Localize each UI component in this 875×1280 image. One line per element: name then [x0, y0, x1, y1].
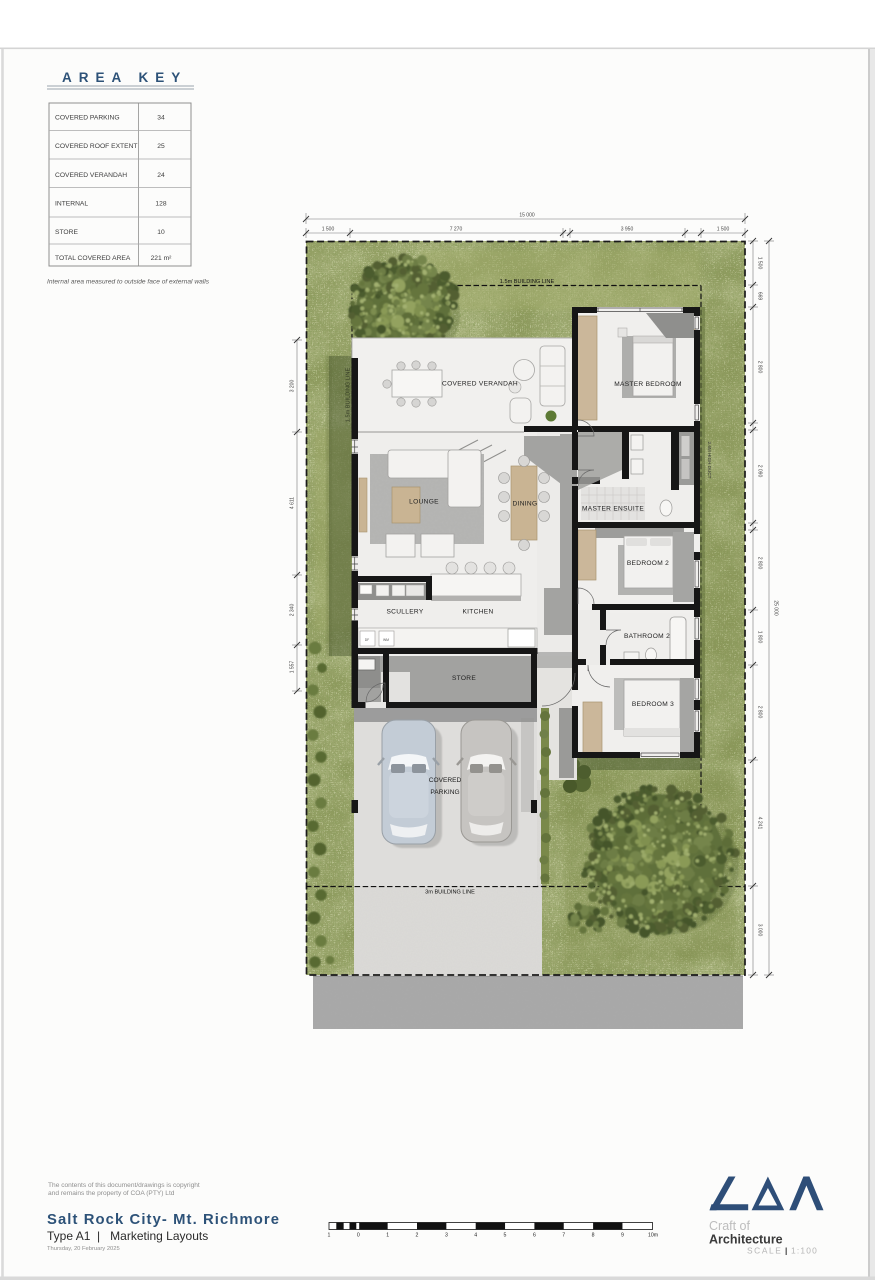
svg-text:1 800: 1 800 — [757, 631, 763, 644]
svg-text:DF: DF — [365, 638, 370, 642]
svg-text:PARKING: PARKING — [430, 789, 459, 796]
svg-text:BEDROOM 2: BEDROOM 2 — [627, 560, 669, 567]
svg-text:Salt Rock City- Mt. Richmore: Salt Rock City- Mt. Richmore — [47, 1212, 280, 1228]
svg-text:1:100: 1:100 — [791, 1246, 818, 1256]
svg-text:15 000: 15 000 — [519, 213, 535, 219]
svg-text:4 241: 4 241 — [757, 817, 763, 830]
svg-text:34: 34 — [157, 115, 165, 122]
svg-text:6: 6 — [533, 1233, 536, 1239]
svg-text:7 270: 7 270 — [450, 227, 463, 233]
svg-text:COVERED ROOF EXTENT: COVERED ROOF EXTENT — [55, 143, 138, 150]
svg-text:SCULLERY: SCULLERY — [386, 609, 423, 616]
svg-text:AREA KEY: AREA KEY — [62, 70, 187, 85]
svg-text:2 090: 2 090 — [757, 465, 763, 478]
svg-text:Architecture: Architecture — [709, 1233, 783, 1247]
svg-text:0: 0 — [357, 1233, 360, 1239]
svg-text:TOTAL COVERED AREA: TOTAL COVERED AREA — [55, 255, 131, 262]
svg-text:24: 24 — [157, 172, 165, 179]
svg-text:1 500: 1 500 — [717, 227, 730, 233]
svg-text:1 557: 1 557 — [290, 661, 296, 674]
svg-text:221 m²: 221 m² — [151, 255, 173, 262]
svg-text:Internal area measured to outs: Internal area measured to outside face o… — [47, 279, 210, 286]
svg-text:Craft of: Craft of — [709, 1219, 751, 1233]
svg-text:2 340: 2 340 — [290, 604, 296, 617]
svg-text:The contents of this document/: The contents of this document/drawings i… — [48, 1182, 200, 1189]
svg-text:2 800: 2 800 — [757, 706, 763, 719]
svg-text:Thursday, 20 February 2025: Thursday, 20 February 2025 — [47, 1246, 120, 1252]
svg-text:10: 10 — [157, 229, 165, 236]
svg-text:3 950: 3 950 — [621, 227, 634, 233]
svg-text:SCALE: SCALE — [747, 1246, 782, 1256]
svg-text:STORE: STORE — [452, 675, 476, 682]
svg-text:COVERED VERANDAH: COVERED VERANDAH — [55, 172, 127, 179]
svg-text:WM: WM — [383, 638, 389, 642]
svg-text:2 800: 2 800 — [757, 361, 763, 374]
svg-text:7: 7 — [562, 1233, 565, 1239]
svg-text:8: 8 — [592, 1233, 595, 1239]
svg-text:2.6M HIGH DUCT: 2.6M HIGH DUCT — [707, 441, 712, 478]
svg-text:|: | — [785, 1246, 787, 1256]
svg-text:2 800: 2 800 — [757, 557, 763, 570]
svg-text:1.5m BUILDING LINE: 1.5m BUILDING LINE — [500, 279, 555, 285]
svg-text:COVERED PARKING: COVERED PARKING — [55, 115, 120, 122]
svg-text:COVERED: COVERED — [429, 777, 462, 784]
svg-text:4: 4 — [474, 1233, 477, 1239]
svg-text:669: 669 — [757, 292, 763, 301]
svg-text:5: 5 — [504, 1233, 507, 1239]
svg-text:STORE: STORE — [55, 229, 78, 236]
svg-text:25 000: 25 000 — [773, 600, 779, 616]
svg-text:9: 9 — [621, 1233, 624, 1239]
svg-text:1 500: 1 500 — [322, 227, 335, 233]
svg-text:and remains the property of CO: and remains the property of COA (PTY) Lt… — [48, 1190, 175, 1197]
svg-text:3m BUILDING LINE: 3m BUILDING LINE — [425, 890, 475, 896]
svg-text:10m: 10m — [648, 1233, 658, 1239]
svg-text:BEDROOM 3: BEDROOM 3 — [632, 701, 674, 708]
svg-text:COVERED VERANDAH: COVERED VERANDAH — [442, 381, 518, 388]
svg-text:MASTER ENSUITE: MASTER ENSUITE — [582, 506, 644, 513]
svg-text:KITCHEN: KITCHEN — [462, 609, 493, 616]
svg-text:DINING: DINING — [513, 501, 538, 508]
svg-text:25: 25 — [157, 143, 165, 150]
svg-text:4 611: 4 611 — [290, 497, 296, 509]
svg-text:BATHROOM 2: BATHROOM 2 — [624, 633, 670, 640]
svg-text:3 000: 3 000 — [757, 924, 763, 937]
svg-text:LOUNGE: LOUNGE — [409, 499, 439, 506]
svg-text:1 500: 1 500 — [757, 257, 763, 270]
svg-text:2: 2 — [416, 1233, 419, 1239]
svg-text:1: 1 — [328, 1233, 331, 1239]
svg-text:INTERNAL: INTERNAL — [55, 201, 88, 208]
svg-text:1: 1 — [386, 1233, 389, 1239]
svg-text:3 200: 3 200 — [290, 380, 296, 393]
svg-text:Type A1 | Marketing Layouts: Type A1 | Marketing Layouts — [47, 1229, 208, 1243]
svg-text:128: 128 — [155, 201, 166, 208]
svg-text:3: 3 — [445, 1233, 448, 1239]
svg-text:MASTER BEDROOM: MASTER BEDROOM — [614, 381, 682, 388]
